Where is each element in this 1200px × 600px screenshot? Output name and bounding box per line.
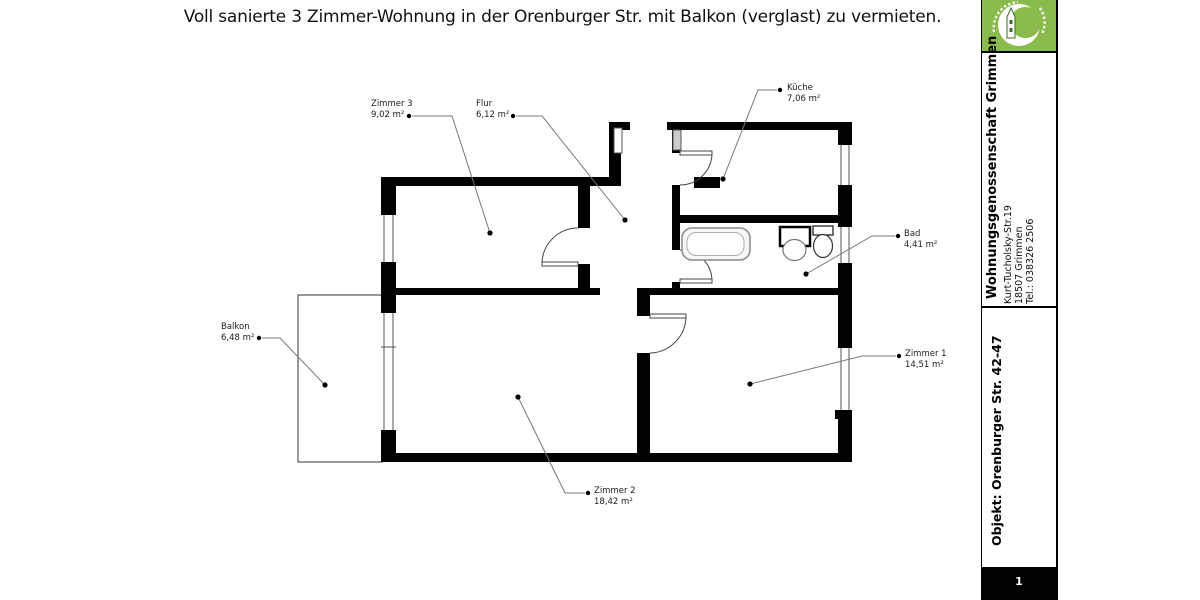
address-city: 18507 Grimmen (1014, 188, 1025, 304)
room-area: 4,41 m² (904, 240, 937, 251)
room-name: Bad (904, 229, 937, 240)
room-area: 14,51 m² (905, 360, 947, 371)
room-area: 9,02 m² (371, 110, 413, 121)
room-label-zimmer2: Zimmer 2 18,42 m² (594, 486, 636, 508)
floorplan-page: Voll sanierte 3 Zimmer-Wohnung in der Or… (0, 0, 1200, 600)
room-label-zimmer1: Zimmer 1 14,51 m² (905, 349, 947, 371)
room-name: Zimmer 2 (594, 486, 636, 497)
sidebar: Wohnungsgenossenschaft Grimmen Kurt-Tuch… (981, 0, 1058, 600)
balcony-outline (298, 295, 382, 462)
entry-door-slab (673, 130, 681, 150)
walls-group (381, 122, 852, 462)
page-number: 1 (1015, 575, 1023, 588)
page-number-footer: 1 (982, 567, 1056, 600)
company-address: Kurt-Tucholsky-Str.19 18507 Grimmen Tel.… (1003, 188, 1036, 304)
room-name: Küche (787, 83, 820, 94)
address-street: Kurt-Tucholsky-Str.19 (1003, 188, 1014, 304)
toilet (813, 226, 833, 258)
room-name: Flur (476, 99, 509, 110)
room-area: 18,42 m² (594, 497, 636, 508)
room-name: Balkon (221, 322, 254, 333)
room-label-kueche: Küche 7,06 m² (787, 83, 820, 105)
room-area: 6,48 m² (221, 333, 254, 344)
company-name: Wohnungsgenossenschaft Grimmen (985, 67, 1000, 299)
room-name: Zimmer 1 (905, 349, 947, 360)
room-label-flur: Flur 6,12 m² (476, 99, 509, 121)
room-area: 7,06 m² (787, 94, 820, 105)
room-name: Zimmer 3 (371, 99, 413, 110)
room-label-balkon: Balkon 6,48 m² (221, 322, 254, 344)
room-area: 6,12 m² (476, 110, 509, 121)
sidebar-divider (982, 306, 1056, 308)
address-phone: Tel.: 038326 2506 (1025, 188, 1036, 304)
room-label-bad: Bad 4,41 m² (904, 229, 937, 251)
bathtub (682, 228, 750, 260)
washbasin (780, 227, 810, 261)
room-label-zimmer3: Zimmer 3 9,02 m² (371, 99, 413, 121)
object-label: Objekt: Orenburger Str. 42-47 (989, 344, 1005, 546)
